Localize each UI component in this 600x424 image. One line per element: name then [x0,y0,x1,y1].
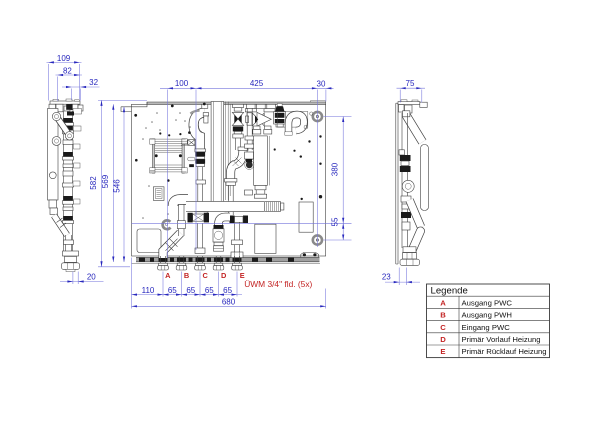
svg-text:D: D [440,335,446,344]
svg-text:65: 65 [168,286,177,295]
svg-text:Primär Vorlauf Heizung: Primär Vorlauf Heizung [462,335,541,344]
svg-text:30: 30 [317,79,326,88]
svg-text:ÜWM 3/4" fld. (5x): ÜWM 3/4" fld. (5x) [244,279,312,289]
svg-text:680: 680 [222,297,236,306]
svg-text:D: D [221,271,227,280]
svg-text:Eingang PWC: Eingang PWC [462,323,511,332]
svg-text:A: A [165,271,171,280]
svg-text:65: 65 [223,286,232,295]
svg-text:546: 546 [112,179,121,193]
svg-text:C: C [203,271,209,280]
svg-text:E: E [440,347,445,356]
svg-text:B: B [184,271,189,280]
svg-text:32: 32 [89,78,98,87]
svg-text:C: C [440,323,446,332]
svg-text:75: 75 [406,79,415,88]
svg-text:B: B [440,311,446,320]
svg-text:100: 100 [175,79,189,88]
svg-text:A: A [440,298,446,307]
svg-text:55: 55 [331,217,340,226]
svg-text:569: 569 [101,174,110,188]
svg-text:65: 65 [205,286,214,295]
svg-text:Ausgang PWC: Ausgang PWC [462,298,513,307]
svg-text:Legende: Legende [431,286,468,297]
svg-text:20: 20 [87,273,96,282]
svg-text:Ausgang PWH: Ausgang PWH [462,311,512,320]
svg-text:110: 110 [142,286,155,295]
svg-text:23: 23 [382,272,391,281]
svg-text:380: 380 [331,162,340,176]
svg-text:Primär Rücklauf Heizung: Primär Rücklauf Heizung [462,347,547,356]
svg-text:582: 582 [89,176,98,190]
svg-text:109: 109 [57,54,71,63]
svg-text:65: 65 [186,286,195,295]
svg-text:425: 425 [250,79,264,88]
svg-text:82: 82 [63,67,72,76]
